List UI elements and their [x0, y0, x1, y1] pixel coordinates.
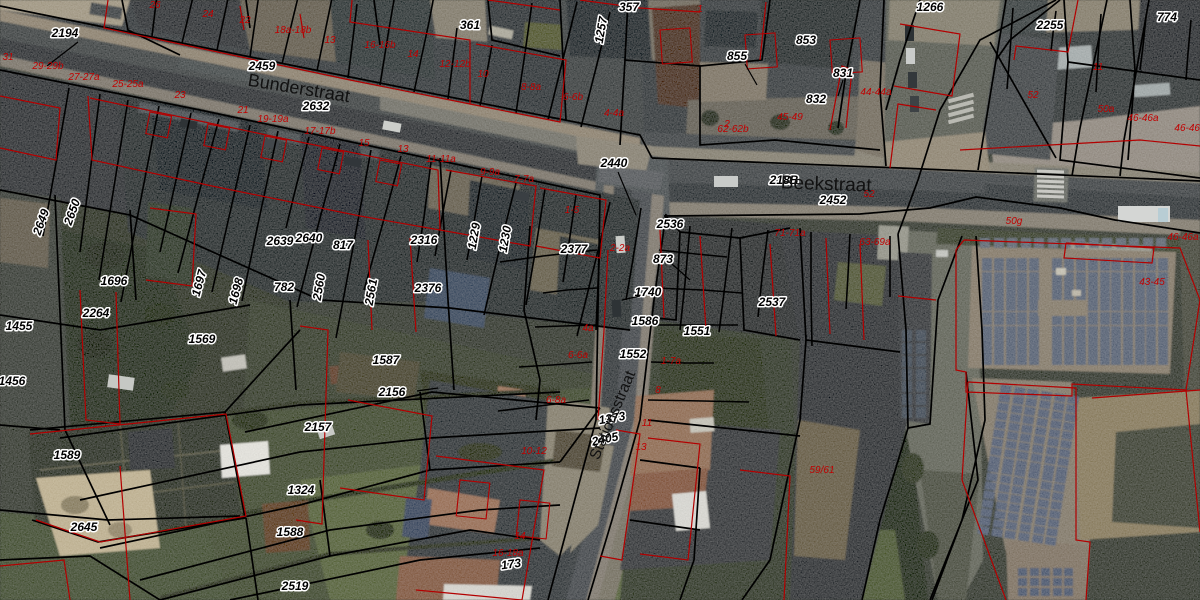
- svg-text:11: 11: [642, 418, 652, 429]
- svg-text:1: 1: [697, 4, 703, 15]
- svg-text:50g: 50g: [1006, 216, 1023, 227]
- svg-text:8: 8: [655, 385, 661, 396]
- svg-text:774: 774: [1157, 10, 1177, 24]
- svg-text:1589: 1589: [54, 448, 81, 462]
- svg-text:8-8a: 8-8a: [521, 82, 541, 93]
- svg-text:13: 13: [397, 144, 409, 155]
- svg-text:31: 31: [2, 52, 13, 63]
- svg-text:2440: 2440: [600, 156, 628, 170]
- svg-text:10: 10: [477, 69, 489, 80]
- svg-text:10-12: 10-12: [521, 446, 547, 457]
- svg-text:2316: 2316: [410, 233, 438, 247]
- svg-text:9-9a: 9-9a: [480, 167, 500, 178]
- svg-text:63-69a: 63-69a: [859, 237, 891, 248]
- svg-text:Beekstraat: Beekstraat: [780, 172, 872, 196]
- svg-text:6-6b: 6-6b: [563, 92, 583, 103]
- svg-text:59/61: 59/61: [809, 465, 834, 476]
- svg-text:1324: 1324: [288, 483, 315, 497]
- svg-text:2537: 2537: [758, 295, 787, 309]
- svg-text:15: 15: [358, 138, 370, 149]
- svg-text:46-46b: 46-46b: [1174, 123, 1200, 134]
- svg-text:16-16b: 16-16b: [364, 40, 396, 51]
- svg-text:14: 14: [514, 531, 526, 542]
- svg-text:817: 817: [333, 238, 354, 252]
- svg-text:2264: 2264: [82, 306, 110, 320]
- svg-text:2519: 2519: [281, 579, 309, 593]
- svg-text:43-45: 43-45: [1139, 277, 1165, 288]
- svg-text:46-46a: 46-46a: [1167, 232, 1199, 243]
- svg-text:46-46a: 46-46a: [1127, 113, 1159, 124]
- svg-text:1552: 1552: [620, 347, 647, 361]
- svg-text:1551: 1551: [684, 324, 711, 338]
- svg-text:6-6a: 6-6a: [568, 350, 588, 361]
- svg-text:357: 357: [619, 0, 640, 14]
- svg-text:361: 361: [460, 18, 480, 32]
- svg-text:45-49: 45-49: [777, 112, 803, 123]
- svg-text:782: 782: [274, 280, 294, 294]
- svg-text:2156: 2156: [378, 385, 406, 399]
- svg-text:26: 26: [148, 0, 161, 11]
- svg-text:855: 855: [727, 49, 747, 63]
- svg-text:18a-18b: 18a-18b: [275, 25, 312, 36]
- svg-text:13: 13: [635, 442, 647, 453]
- svg-text:2639: 2639: [266, 234, 294, 248]
- svg-text:1-5: 1-5: [565, 205, 580, 216]
- svg-text:25-25a: 25-25a: [111, 79, 144, 90]
- svg-text:832: 832: [806, 92, 826, 106]
- svg-text:13: 13: [324, 35, 336, 46]
- svg-text:50a: 50a: [1098, 104, 1115, 115]
- svg-text:2-2a: 2-2a: [609, 243, 630, 254]
- svg-text:1455: 1455: [6, 319, 33, 333]
- svg-text:12-12b: 12-12b: [439, 59, 471, 70]
- svg-text:853: 853: [796, 33, 816, 47]
- svg-text:1696: 1696: [101, 274, 128, 288]
- svg-text:23: 23: [173, 90, 186, 101]
- svg-text:7-7a: 7-7a: [514, 174, 534, 185]
- svg-text:2255: 2255: [1036, 18, 1064, 32]
- svg-text:2376: 2376: [414, 281, 442, 295]
- svg-text:71-71a: 71-71a: [774, 228, 806, 239]
- svg-text:6-8a: 6-8a: [546, 395, 566, 406]
- svg-text:21: 21: [236, 105, 248, 116]
- svg-text:1587: 1587: [373, 353, 401, 367]
- svg-text:29-29b: 29-29b: [31, 61, 64, 72]
- svg-text:24: 24: [201, 9, 214, 20]
- svg-text:1266: 1266: [917, 0, 944, 14]
- svg-text:873: 873: [653, 252, 673, 266]
- svg-text:44-44a: 44-44a: [860, 87, 892, 98]
- svg-text:16-18a: 16-18a: [492, 548, 524, 559]
- svg-text:62-62b: 62-62b: [717, 124, 749, 135]
- svg-text:27-27a: 27-27a: [67, 72, 100, 83]
- svg-text:19-19a: 19-19a: [257, 114, 289, 125]
- svg-text:2157: 2157: [304, 420, 333, 434]
- svg-text:11: 11: [1093, 62, 1103, 73]
- svg-text:1-7a: 1-7a: [661, 356, 681, 367]
- svg-text:2536: 2536: [656, 217, 684, 231]
- svg-text:52: 52: [1027, 90, 1039, 101]
- svg-text:4a: 4a: [582, 323, 594, 334]
- svg-text:4-4a: 4-4a: [604, 108, 624, 119]
- svg-text:1588: 1588: [277, 525, 304, 539]
- svg-text:1456: 1456: [0, 374, 26, 388]
- svg-text:2194: 2194: [51, 26, 79, 40]
- svg-text:2645: 2645: [70, 520, 98, 534]
- svg-text:2640: 2640: [295, 231, 323, 245]
- svg-text:2377: 2377: [560, 242, 589, 256]
- svg-text:14: 14: [407, 49, 419, 60]
- svg-text:11-11a: 11-11a: [426, 154, 456, 165]
- svg-text:831: 831: [833, 66, 853, 80]
- svg-text:1586: 1586: [632, 314, 659, 328]
- svg-text:17-17b: 17-17b: [304, 126, 336, 137]
- svg-text:22: 22: [238, 15, 251, 26]
- svg-text:1569: 1569: [189, 332, 216, 346]
